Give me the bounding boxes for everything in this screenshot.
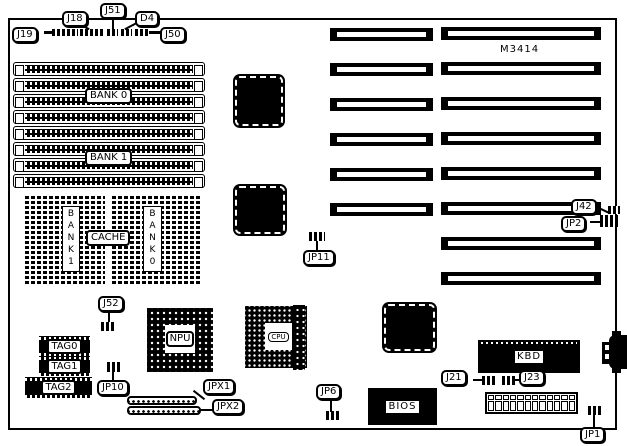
board-model-text: M3414 — [500, 44, 539, 55]
expansion-slot — [441, 272, 601, 285]
callout-jp10: JP10 — [97, 380, 129, 396]
callout-d4: D4 — [135, 11, 159, 27]
power-pin — [547, 401, 553, 411]
power-connector — [485, 392, 578, 414]
expansion-slot — [330, 98, 433, 111]
power-pin — [488, 401, 494, 411]
callout-line — [199, 409, 213, 411]
kbd-chip: KBD — [478, 340, 580, 373]
expansion-slot — [441, 167, 601, 180]
cache-label: CACHE — [86, 230, 130, 246]
expansion-slot-column-right — [441, 27, 601, 285]
power-pin — [510, 401, 516, 411]
tag0-chip: TAG0 — [39, 336, 90, 356]
jumper-block-j21 — [482, 376, 497, 385]
keyboard-din-connector — [612, 331, 621, 337]
plcc-chip-1 — [233, 74, 285, 128]
expansion-slot — [441, 27, 601, 40]
vertical-pin-header — [293, 305, 305, 370]
jumper-block-j18 — [80, 29, 104, 36]
plcc-chip-2 — [233, 184, 287, 236]
callout-line — [316, 241, 318, 250]
jumper-block-j19 — [52, 29, 78, 36]
callout-jpx1: JPX1 — [203, 379, 235, 395]
din-pin — [604, 353, 610, 360]
jumper-block-jp11 — [309, 232, 325, 241]
jumper-block-jp6 — [326, 411, 340, 420]
tag1-chip: TAG1 — [39, 356, 90, 376]
power-pin — [517, 401, 523, 411]
expansion-slot — [441, 97, 601, 110]
plcc-chip-3 — [382, 302, 437, 353]
callout-j51: J51 — [100, 3, 126, 19]
jumper-block-jp2 — [600, 215, 619, 227]
callout-j42: J42 — [571, 199, 597, 215]
simm-bank-area — [13, 62, 205, 190]
callout-jp2: JP2 — [561, 216, 586, 232]
expansion-slot — [330, 203, 433, 216]
din-pin — [604, 344, 610, 351]
simm-slot — [13, 174, 205, 188]
jpx1-pin-row — [127, 396, 197, 405]
callout-j18: J18 — [62, 11, 88, 27]
callout-j23: J23 — [519, 370, 545, 386]
callout-line — [590, 221, 601, 223]
expansion-slot — [330, 28, 433, 41]
bios-chip: BIOS — [368, 388, 437, 425]
callout-line — [473, 379, 483, 381]
simm-slot — [13, 110, 205, 124]
callout-line — [108, 311, 110, 322]
callout-line — [330, 399, 332, 412]
power-pin — [525, 401, 531, 411]
cpu-label: CPU — [268, 332, 288, 342]
callout-line — [593, 414, 595, 428]
expansion-slot — [330, 168, 433, 181]
callout-jpx2: JPX2 — [212, 399, 244, 415]
bank0-label: BANK 0 — [85, 88, 132, 104]
power-pin — [539, 401, 545, 411]
power-connector-bottom-row — [487, 400, 576, 411]
callout-j19: J19 — [12, 27, 38, 43]
tag1-label: TAG1 — [47, 359, 81, 374]
callout-j50: J50 — [160, 27, 186, 43]
motherboard-diagram: J19 J18 J51 D4 J50 BANK 0 BANK 1 BANK1 B… — [0, 0, 627, 446]
simm-slot — [13, 126, 205, 140]
jumper-block-j50 — [135, 29, 148, 36]
callout-jp1: JP1 — [580, 427, 605, 443]
power-pin — [554, 401, 560, 411]
cache-bank0-label: BANK0 — [143, 206, 162, 272]
npu-socket: NPU — [147, 308, 213, 372]
callout-j52: J52 — [98, 296, 124, 312]
cache-bank1-label: BANK1 — [62, 206, 80, 272]
jumper-block-d4 — [121, 29, 132, 36]
expansion-slot — [441, 62, 601, 75]
power-pin — [532, 401, 538, 411]
callout-j21: J21 — [441, 370, 467, 386]
power-pin — [569, 401, 575, 411]
keyboard-din-connector — [612, 368, 621, 373]
tag2-label: TAG2 — [41, 380, 75, 395]
expansion-slot-column-left — [330, 28, 433, 216]
jumper-block-j42 — [608, 206, 620, 214]
expansion-slot — [330, 133, 433, 146]
expansion-slot — [330, 63, 433, 76]
jpx2-pin-row — [127, 406, 201, 415]
power-pin — [495, 401, 501, 411]
callout-jp6: JP6 — [316, 384, 341, 400]
expansion-slot — [441, 132, 601, 145]
expansion-slot — [441, 237, 601, 250]
simm-slot — [13, 62, 205, 76]
jumper-block-j51 — [107, 29, 118, 36]
tag2-chip: TAG2 — [25, 377, 92, 398]
bios-label: BIOS — [385, 400, 419, 414]
kbd-label: KBD — [514, 350, 544, 364]
callout-jp11: JP11 — [303, 250, 335, 266]
npu-label: NPU — [166, 331, 195, 347]
tag0-label: TAG0 — [47, 339, 81, 354]
jumper-block-j52 — [101, 322, 114, 331]
bank1-label: BANK 1 — [85, 150, 132, 166]
power-pin — [503, 401, 509, 411]
callout-line — [44, 31, 53, 34]
power-pin — [561, 401, 567, 411]
